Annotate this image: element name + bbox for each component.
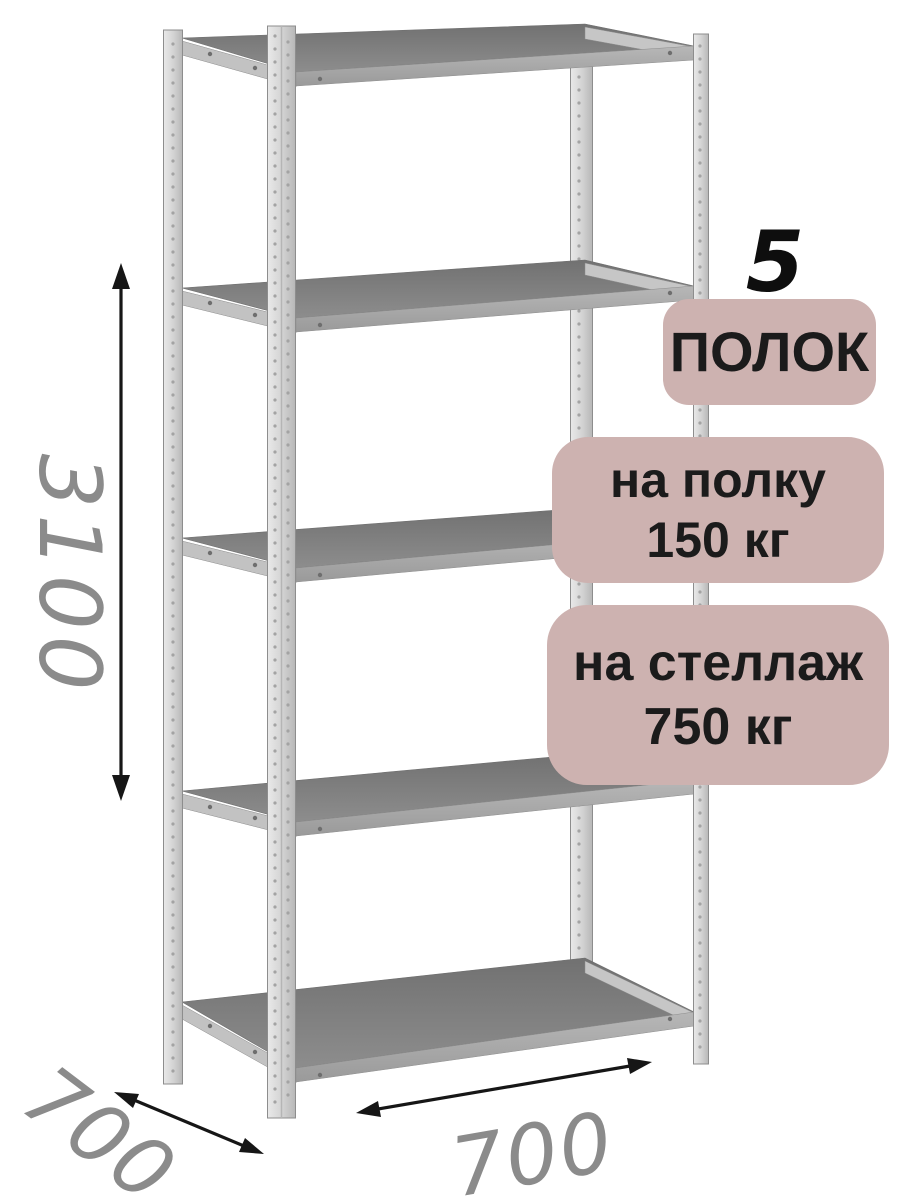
rack-load-line2: 750 кг (644, 695, 793, 759)
shelf-load-line2: 150 кг (646, 510, 789, 570)
rack-shelf-2 (182, 260, 694, 333)
height-dimension-label: 3100 (26, 454, 112, 697)
shelving-rack-illustration (0, 0, 900, 1200)
shelf-count-label: ПОЛОК (670, 324, 869, 380)
front-left-post (268, 26, 296, 1118)
back-left-post (164, 30, 183, 1084)
product-image: 3100 700 700 5 ПОЛОК на полку 150 кг на … (0, 0, 900, 1200)
rack-shelf-1 (182, 24, 694, 87)
rack-load-badge: на стеллаж 750 кг (547, 605, 889, 785)
shelf-load-line1: на полку (610, 450, 826, 510)
rack-shelf-5 (182, 958, 694, 1083)
shelf-count-badge: ПОЛОК (663, 299, 876, 405)
rack-load-line1: на стеллаж (573, 631, 863, 695)
shelf-count-number: 5 (695, 220, 855, 304)
shelf-load-badge: на полку 150 кг (552, 437, 884, 583)
